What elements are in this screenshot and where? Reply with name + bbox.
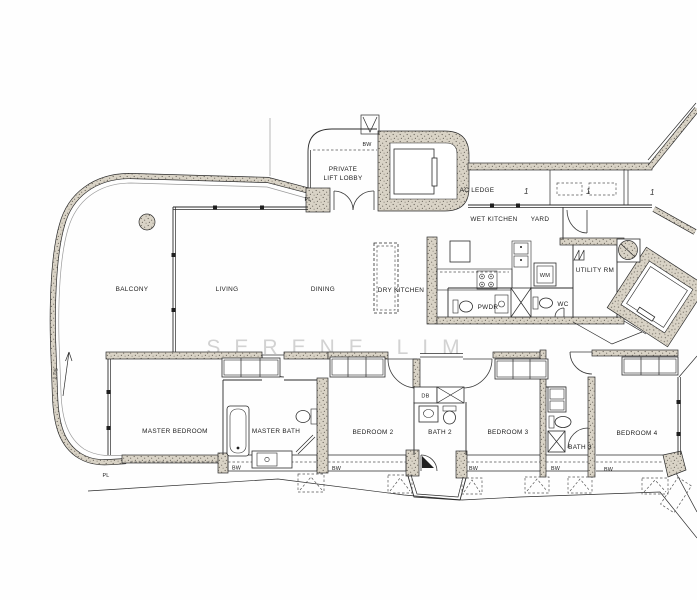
room-label-master-bedroom: MASTER BEDROOM xyxy=(142,428,208,435)
lobby-double-door xyxy=(334,191,374,210)
master-shower-screen xyxy=(296,435,315,454)
utility-bifold-door xyxy=(574,250,584,260)
lift-car xyxy=(394,149,434,194)
wc-toilet xyxy=(533,297,553,309)
bedroom4-wardrobe xyxy=(622,357,678,375)
floor-plan-drawing: SERENE LIM xyxy=(0,0,697,600)
yard-door xyxy=(567,210,587,233)
lift-door xyxy=(432,158,437,186)
wc-door xyxy=(555,308,564,317)
column xyxy=(139,214,155,230)
master-bathtub xyxy=(227,406,249,456)
master-vanity xyxy=(252,451,292,468)
room-label-bedroom4: BEDROOM 4 xyxy=(616,430,657,437)
master-toilet xyxy=(296,409,317,424)
marker-bw-1: BW xyxy=(232,466,242,472)
marker-bw-lobby: BW xyxy=(362,142,372,148)
kitchen-corner-counter xyxy=(450,241,470,262)
room-label-bath2: BATH 2 xyxy=(428,429,452,436)
ac-ledge xyxy=(468,109,697,232)
bay-window-band xyxy=(228,455,663,471)
dry-kitchen-island xyxy=(374,243,398,313)
planter-ledges xyxy=(298,474,668,494)
master-wardrobe xyxy=(222,358,280,377)
bath2-toilet xyxy=(443,406,456,424)
marker-pl-bottom: PL xyxy=(103,473,110,479)
floor-plan-page: SERENE LIM xyxy=(0,0,697,600)
bedroom-walls xyxy=(106,350,697,478)
duct-shaft xyxy=(511,288,531,317)
bath3-shower xyxy=(548,431,565,452)
bedroom2-wardrobe xyxy=(330,357,385,377)
marker-bw-4: BW xyxy=(551,466,561,472)
marker-pl-top: PL xyxy=(305,197,312,203)
hob xyxy=(477,271,497,289)
bedroom-fixtures xyxy=(222,357,678,468)
bath3-toilet xyxy=(549,416,571,428)
room-label-lift-lobby-1: PRIVATE xyxy=(329,166,358,173)
kitchen-sink xyxy=(514,243,528,267)
room-label-wet-kitchen: WET KITCHEN xyxy=(470,216,517,223)
lift-shaft xyxy=(361,115,469,211)
marker-bw-3: BW xyxy=(469,466,479,472)
ac-unit-outline xyxy=(557,183,582,195)
louver-vent xyxy=(437,387,464,403)
room-label-utility: UTILITY RM xyxy=(576,267,614,274)
room-label-pwdr: PWDR xyxy=(478,304,499,311)
service-lift xyxy=(607,239,697,347)
marker-ac-2: 1 xyxy=(586,187,591,196)
room-label-balcony: BALCONY xyxy=(116,286,149,293)
room-label-ac-ledge: AC LEDGE xyxy=(460,187,495,194)
room-label-dining: DINING xyxy=(311,286,335,293)
marker-ac-1: 1 xyxy=(524,187,529,196)
room-label-lift-lobby-2: LIFT LOBBY xyxy=(323,175,363,182)
balcony-living-partition xyxy=(139,206,308,353)
bath2-sink xyxy=(419,406,438,422)
bath3-cabinet xyxy=(548,387,566,412)
room-label-living: LIVING xyxy=(216,286,239,293)
room-label-yard: YARD xyxy=(531,216,550,223)
room-label-wc: WC xyxy=(557,301,568,308)
bedroom4-door xyxy=(570,352,592,374)
balcony-exterior-wall xyxy=(53,176,310,462)
ac-unit-outline xyxy=(589,183,616,195)
marker-ac-3: 1 xyxy=(650,188,655,197)
room-label-wm: WM xyxy=(540,273,551,279)
wet-kitchen-fixtures xyxy=(437,241,531,290)
room-label-bath3: BATH 3 xyxy=(568,444,592,451)
room-label-bedroom3: BEDROOM 3 xyxy=(487,429,528,436)
pwdr-toilet xyxy=(453,300,473,313)
marker-bw-5: BW xyxy=(604,467,614,473)
room-label-dry-kitchen: DRY KITCHEN xyxy=(378,287,424,294)
marker-bw-2: BW xyxy=(332,466,342,472)
bedroom3-door xyxy=(463,359,492,388)
room-label-master-bath: MASTER BATH xyxy=(252,428,300,435)
room-label-db: DB xyxy=(421,394,429,400)
bedroom2-door xyxy=(388,359,417,388)
dimension-label: 1.05 xyxy=(52,368,60,381)
room-label-bedroom2: BEDROOM 2 xyxy=(352,429,393,436)
bedroom3-wardrobe xyxy=(495,359,548,379)
